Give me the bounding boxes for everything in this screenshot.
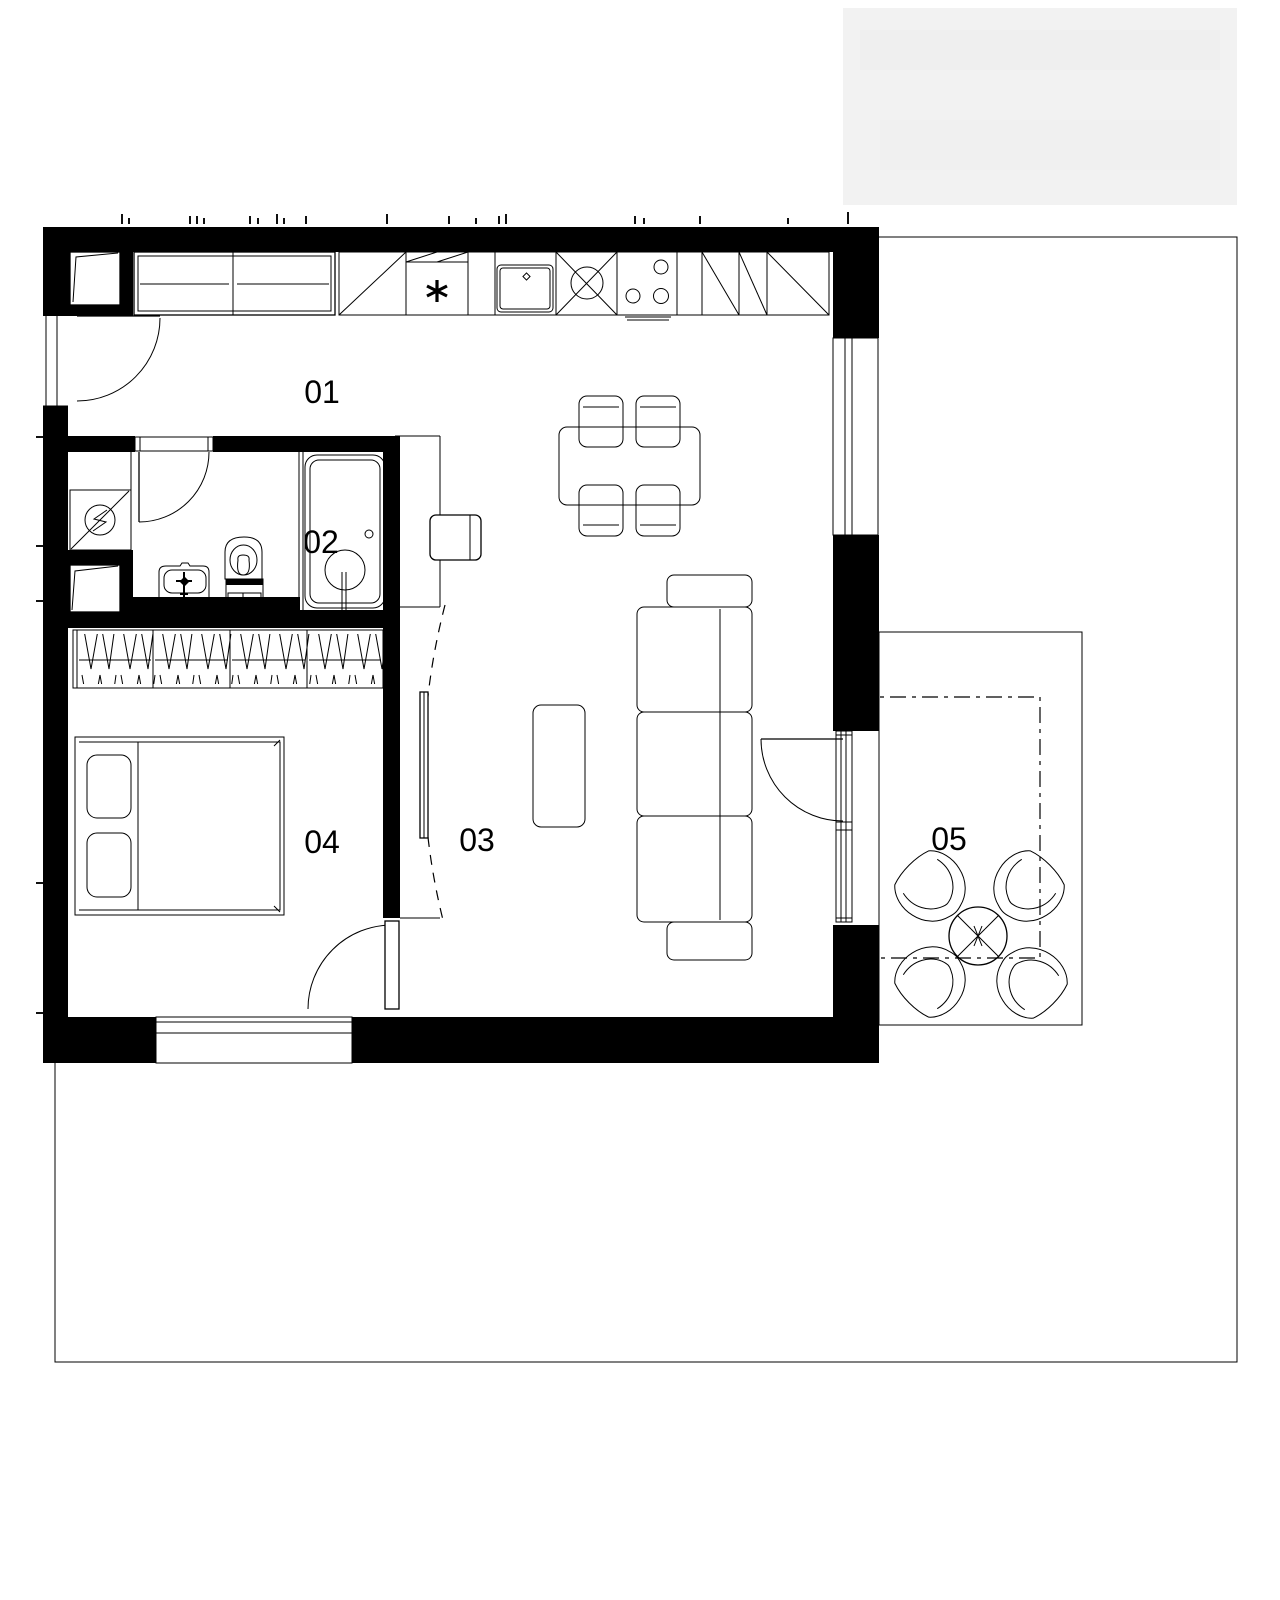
boiler [70,490,131,550]
kitchen-run [134,252,829,320]
dining-chair [636,396,680,447]
exterior-wall-top [43,227,837,252]
balcony-slab [879,632,1082,1025]
exterior-wall-right-top [833,227,879,338]
bedroom-wall-right [383,615,400,918]
lot-boundary [55,237,1237,1362]
balcony-chairs [885,841,1077,1028]
faucet-cross-icon [176,572,192,600]
defrost-asterisk-icon [427,280,447,302]
sofa [637,575,752,960]
watermark [843,8,1237,205]
balcony-chair [885,932,980,1027]
washbasin [159,563,209,601]
balcony-table [949,907,1007,965]
dining-chair [636,485,680,536]
exterior-wall-bottom-left [43,1017,156,1063]
balcony-chair [979,841,1074,936]
exterior-wall-left [43,406,68,1017]
bathroom-door [135,436,213,522]
sofa-armrest [667,922,752,960]
entrance-door [77,316,160,401]
bedroom-wardrobe [73,630,387,688]
faucet-icon [365,530,373,538]
tv-unit [430,515,481,560]
living-room [395,396,752,960]
windows [43,316,878,1063]
sliding-door [420,605,445,920]
fridge [406,252,468,302]
bath-wall-right [383,436,400,615]
balcony-door-frame [836,731,852,922]
bedroom-wall-top [43,610,398,628]
window-right [833,338,878,535]
pillow [87,755,131,818]
hob [625,260,671,320]
room-label-02: 02 [303,524,339,560]
bedroom [73,630,387,915]
bath-wall-top-left [60,436,135,452]
bath-shaft [70,565,120,612]
hall-niche [395,436,440,918]
balcony [858,632,1082,1028]
oven [556,252,617,315]
balcony-door [761,739,843,821]
dining-chair [579,396,623,447]
dining-chair [579,485,623,536]
sofa-armrest [667,575,752,607]
exterior-wall-right-low [833,925,879,1017]
floor-plan-page: 01 02 03 04 05 [0,0,1280,1600]
entrance-opening [43,316,68,406]
dining-set [559,396,700,536]
floor-plan-drawing: 01 02 03 04 05 [0,0,1280,1600]
room-label-05: 05 [931,821,967,857]
bath-wall-top-right [213,436,395,452]
room-label-04: 04 [304,824,340,860]
coffee-table [533,705,585,827]
kitchen-sink [497,265,553,312]
table-center-asterisk-icon [971,926,985,946]
room-label-03: 03 [459,822,495,858]
entry-wardrobe [134,252,335,315]
balcony-chair [982,933,1077,1028]
window-bedroom [156,1017,352,1063]
bed [75,737,284,915]
pillow [87,833,131,897]
dining-table [559,427,700,505]
kitchen-cabinets [339,252,829,315]
toilet [225,537,263,602]
bedroom-door [308,921,399,1009]
entry-shaft [70,252,120,305]
exterior-wall-bottom-right [352,1017,879,1063]
room-label-01: 01 [304,374,340,410]
lightning-icon [93,510,107,531]
exterior-wall-right-mid [833,535,879,731]
